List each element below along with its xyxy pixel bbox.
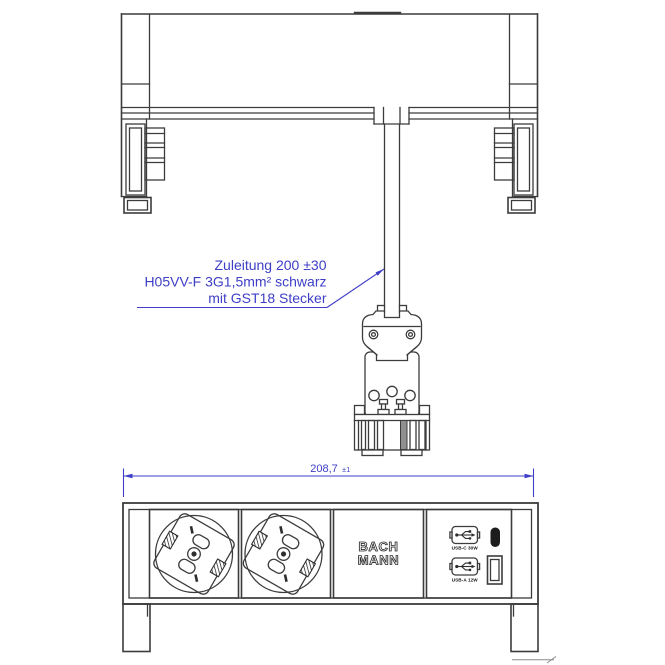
usb-charger-module: USB-C 30W USB-A 12W — [450, 527, 502, 585]
cable-annotation: Zuleitung 200 ±30 H05VV-F 3G1,5mm² schwa… — [137, 257, 384, 308]
dim-arrow-left — [124, 474, 133, 479]
usb-a-port — [488, 556, 503, 584]
technical-drawing-page: Zuleitung 200 ±30 H05VV-F 3G1,5mm² schwa… — [0, 0, 665, 665]
dimension-tolerance: ±1 — [342, 465, 350, 474]
cable-gland — [374, 108, 409, 125]
schuko-socket-2 — [240, 511, 327, 597]
dimension-value: 208,7 — [310, 463, 338, 475]
strip-leg-left — [123, 604, 150, 652]
usb-badge-tab-left — [450, 532, 452, 538]
cropped-dimension-line — [512, 657, 556, 664]
clamp-knob-right — [495, 128, 515, 180]
dim-arrow-right — [525, 474, 534, 479]
strip-leg-right — [511, 604, 538, 652]
schuko-socket-1 — [150, 511, 237, 597]
top-view: 208,7 ±1 BACH MANN — [123, 463, 556, 663]
usb-badge-tab-left-2 — [450, 564, 452, 570]
front-view: Zuleitung 200 ±30 H05VV-F 3G1,5mm² schwa… — [122, 13, 538, 456]
usb-trident-icon — [455, 530, 475, 540]
dimension-overall-width: 208,7 ±1 — [124, 463, 534, 497]
usb-badge-tab-right-2 — [478, 564, 480, 570]
annotation-line-2: H05VV-F 3G1,5mm² schwarz — [144, 274, 326, 290]
usb-c-port — [491, 528, 501, 548]
usb-c-badge — [450, 527, 480, 544]
usb-a-label: USB-A 12W — [452, 578, 479, 583]
usb-a-badge — [450, 558, 480, 575]
leader-line — [327, 269, 384, 308]
clamp-foot-left — [124, 198, 151, 214]
clamp-knob-left — [145, 128, 165, 180]
usb-badge-tab-right — [478, 532, 480, 538]
gst18-connector — [355, 306, 430, 456]
usb-trident-icon-2 — [455, 562, 475, 572]
mounting-clamp-left — [122, 119, 165, 213]
front-body — [122, 13, 538, 197]
technical-drawing: Zuleitung 200 ±30 H05VV-F 3G1,5mm² schwa… — [0, 0, 665, 665]
annotation-line-3: mit GST18 Stecker — [208, 290, 327, 306]
annotation-line-1: Zuleitung 200 ±30 — [215, 257, 327, 273]
leader-arrowhead — [376, 269, 385, 276]
strip-housing — [123, 503, 538, 604]
mounting-clamp-right — [495, 119, 538, 213]
usb-c-label: USB-C 30W — [452, 546, 479, 551]
bachmann-logo: BACH MANN — [358, 539, 399, 568]
power-cable — [385, 124, 400, 307]
logo-line-2: MANN — [358, 553, 399, 568]
clamp-foot-right — [508, 198, 535, 214]
